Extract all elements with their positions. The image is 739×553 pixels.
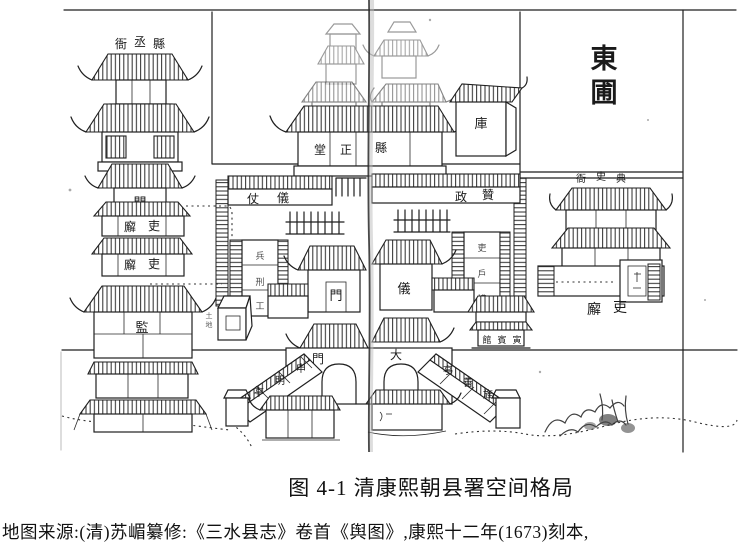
lixie-east-label: 廨	[587, 301, 601, 318]
xiancheng-ya-compound: 衙 丞 縣 門	[71, 35, 209, 222]
zanzheng-label: 贊	[482, 188, 494, 202]
zhengtang-label: 正	[340, 143, 352, 157]
xiancheng-ya-label: 丞	[134, 35, 146, 49]
east-garden: 東 圃	[591, 44, 618, 108]
west-room-label: 工	[255, 301, 264, 311]
east-room-label: 吏	[477, 242, 486, 253]
zhengtang-label: 縣	[375, 141, 387, 155]
yinbinguan-label: 寅	[512, 334, 521, 345]
xiancheng-ya-label: 衙	[115, 37, 127, 51]
tree-sketch	[545, 394, 635, 436]
yizhang-label: 儀	[277, 191, 289, 205]
zanzheng-label: 政	[455, 190, 467, 204]
gallery-row: 仗 儀 政 贊	[228, 174, 520, 206]
yizhang-label: 仗	[247, 192, 259, 206]
figure-source-citation: 地图来源:(清)苏嵋纂修:《三水县志》卷首《舆图》,康熙十二年(1673)刻本,	[2, 519, 739, 544]
shenmingting-label: 亭	[254, 386, 264, 399]
lixie-west1-label: 廨	[124, 219, 136, 234]
prison-compound: 監	[70, 286, 216, 432]
jian-label: 監	[135, 320, 148, 335]
west-room-label: 刑	[255, 277, 264, 287]
jingshanting-label: 亭	[443, 364, 453, 377]
ku-label: 庫	[474, 116, 487, 131]
figure-caption: 图 4-1 清康熙朝县署空间格局	[125, 472, 737, 502]
dianshi-ya-compound: 衙 史 典	[538, 171, 672, 302]
lixie-west2-label: 吏	[148, 256, 160, 271]
lixie-west1-label: 吏	[148, 218, 160, 233]
woodcut-map: 衙 丞 縣 門 廨 吏 廨 吏 監	[0, 0, 739, 460]
jingshanting-label: 旌	[483, 388, 493, 401]
shenmingting-label: 申	[296, 362, 306, 375]
yimen-label: 門	[329, 288, 342, 303]
yinbinguan-label: 賓	[497, 334, 506, 345]
dongpu-label: 圃	[591, 78, 618, 108]
guest-house: 館 賓 寅	[468, 296, 534, 348]
zhengtang-label: 堂	[314, 143, 326, 157]
jingshanting-label: 善	[463, 376, 473, 389]
west-room-label: 兵	[255, 250, 264, 261]
dianshiya-label: 典	[616, 172, 626, 185]
yimen-label: 儀	[397, 281, 410, 296]
storehouse: 庫	[450, 77, 527, 156]
dianshiya-label: 史	[596, 171, 606, 183]
lixie-east-label: 吏	[613, 300, 627, 316]
tudi-label: 地	[206, 320, 213, 329]
yinbinguan-label: 館	[482, 334, 491, 345]
dongpu-label: 東	[591, 44, 618, 74]
tudi-label: 土	[206, 311, 213, 320]
damen-label: 大	[390, 348, 402, 362]
yamen-map-figure: 衙 丞 縣 門 廨 吏 廨 吏 監	[0, 0, 739, 460]
dianshiya-label: 衙	[576, 172, 586, 185]
shenmingting-label: 明	[275, 375, 285, 387]
east-room-label: 戶	[477, 268, 486, 279]
xiancheng-ya-label: 縣	[153, 37, 165, 51]
page-fold	[368, 0, 372, 452]
rear-halls	[318, 22, 439, 84]
clerk-quarters-east-label: 廨 吏	[587, 300, 627, 318]
clerk-quarters-west: 廨 吏 廨 吏	[92, 202, 192, 276]
earth-god-shrine: 土 地	[206, 296, 253, 340]
lixie-west2-label: 廨	[124, 257, 136, 272]
